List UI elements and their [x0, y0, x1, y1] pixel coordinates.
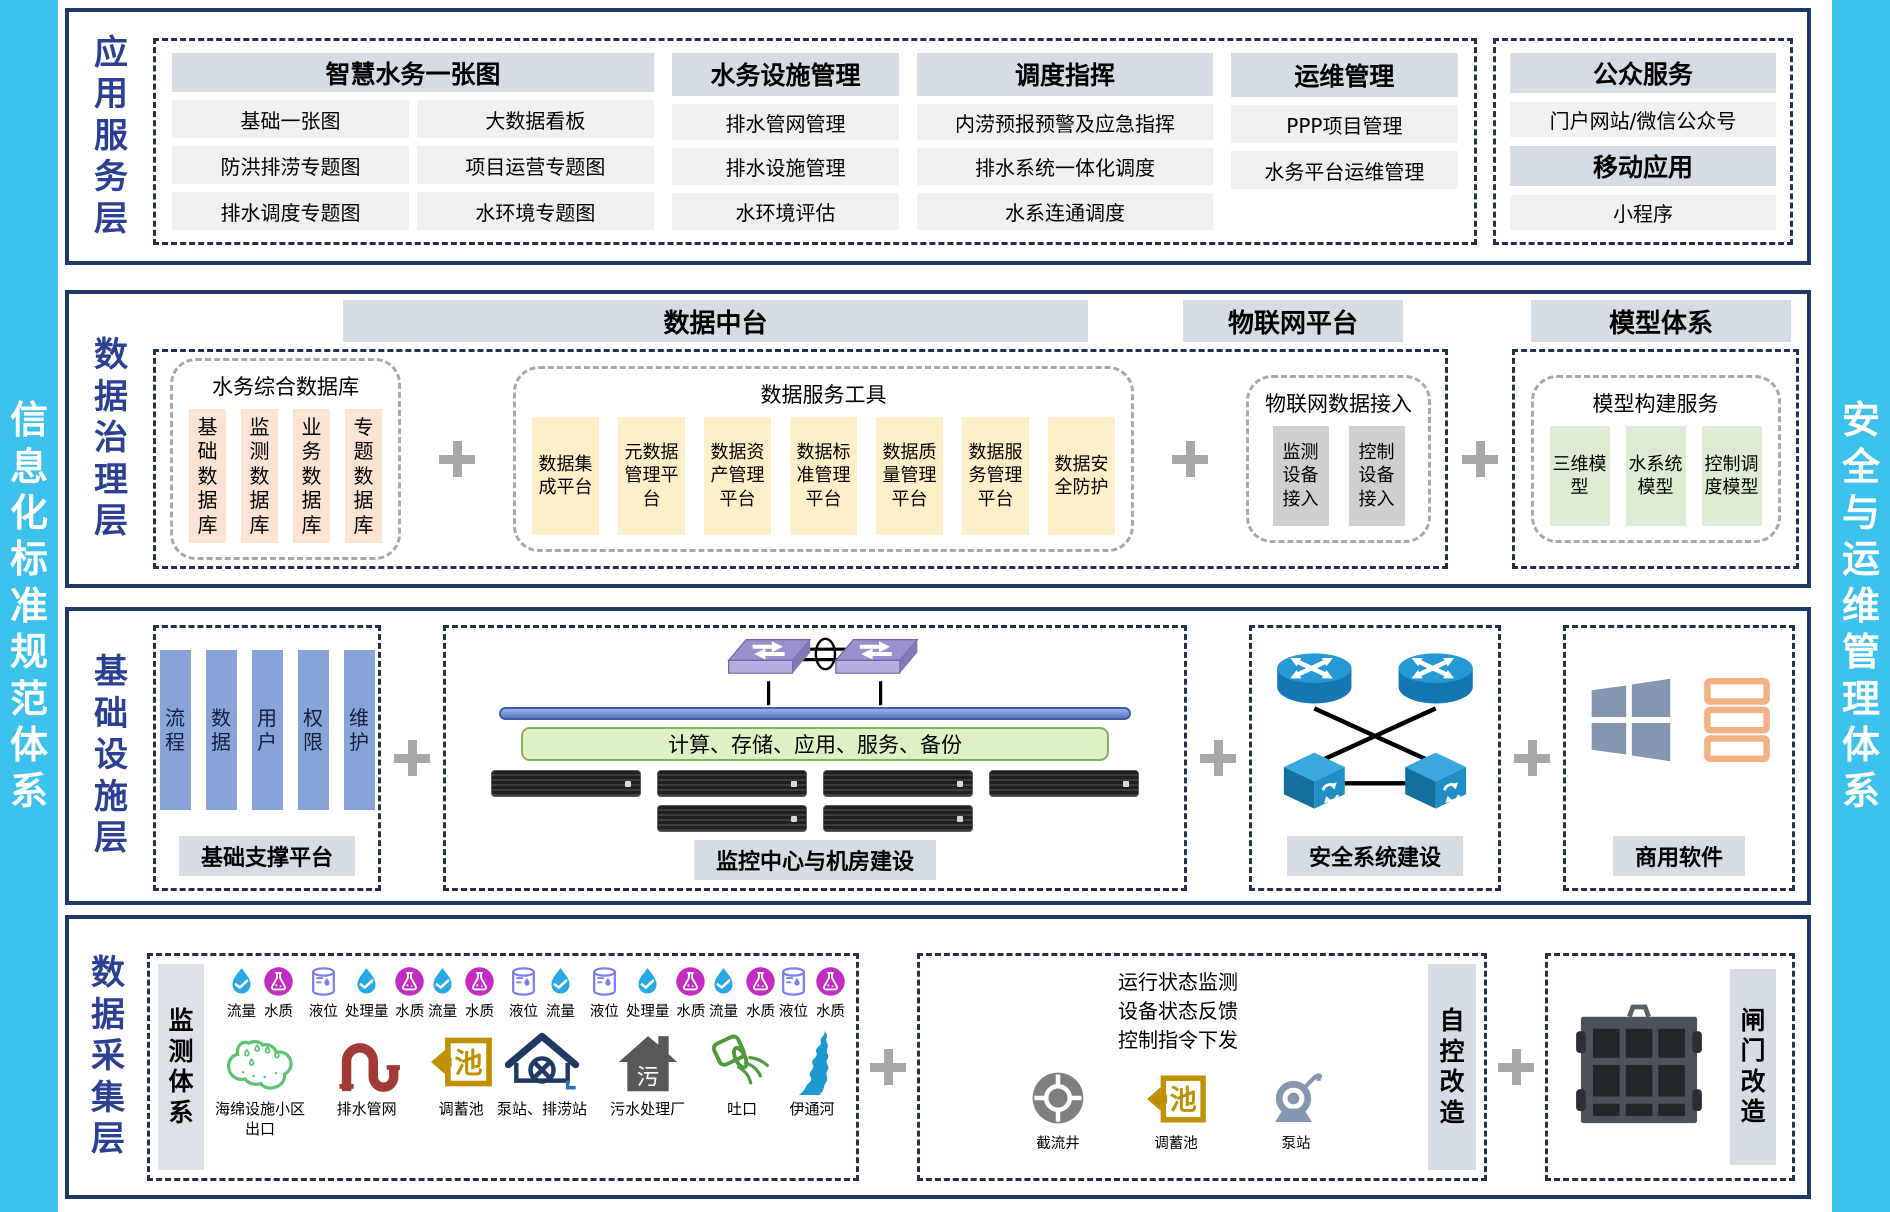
column-facility-management: 水务设施管理 排水管网管理 排水设施管理 水环境评估 — [672, 53, 899, 230]
model-cell: 控制调度模型 — [1702, 426, 1762, 526]
pump-icon — [1265, 1070, 1327, 1127]
group-title: 水务综合数据库 — [189, 371, 382, 401]
governance-body: 数据中台 物联网平台 模型体系 水务综合数据库 基础数据库 监测数据库 业务数据… — [153, 294, 1807, 584]
module-item: 排水调度专题图 — [172, 192, 409, 230]
flow-icon — [545, 966, 576, 997]
column-header: 调度指挥 — [917, 53, 1213, 96]
security-system-caption: 安全系统建设 — [1287, 836, 1463, 876]
gate-retrofit-box: 闸门改造 — [1545, 953, 1795, 1181]
model-system-header: 模型体系 — [1531, 300, 1791, 342]
column-smart-water-map: 智慧水务一张图 基础一张图 大数据看板 防洪排涝专题图 项目运营专题图 排水调度… — [172, 53, 654, 230]
storage-tank-icon — [429, 1033, 493, 1091]
module-item: 防洪排涝专题图 — [172, 146, 409, 184]
facility-label: 调蓄池 — [439, 1100, 484, 1120]
infrastructure-body: 流程 数据 用户 权限 维护 基础支撑平台 计算、存储、应用、服务、备份 — [153, 611, 1807, 901]
datacenter-caption: 监控中心与机房建设 — [694, 840, 936, 880]
module-item: 门户网站/微信公众号 — [1510, 102, 1776, 137]
auto-control-description: 运行状态监测 设备状态反馈 控制指令下发 — [1118, 968, 1238, 1055]
sponge-facility-icon — [221, 1032, 299, 1092]
group-storage-tank: 流量 水质 调蓄池 — [427, 966, 495, 1170]
module-item: 排水系统一体化调度 — [917, 148, 1213, 185]
security-system-box: 安全系统建设 — [1249, 625, 1501, 891]
column-header: 智慧水务一张图 — [172, 53, 654, 92]
module-item: PPP项目管理 — [1231, 105, 1458, 143]
water-quality-icon — [464, 966, 495, 997]
server-rack-grid — [456, 770, 1174, 832]
server-icon — [989, 770, 1139, 797]
monitoring-system-title: 监测体系 — [158, 964, 204, 1170]
database-cell: 基础数据库 — [189, 409, 226, 543]
column-header: 运维管理 — [1231, 53, 1458, 97]
flow-icon — [351, 966, 382, 997]
water-database-group: 水务综合数据库 基础数据库 监测数据库 业务数据库 专题数据库 — [170, 358, 401, 560]
plus-icon — [1200, 740, 1236, 776]
module-item: 水环境专题图 — [417, 192, 654, 230]
level-icon — [589, 966, 620, 997]
pump-station-icon — [504, 1031, 580, 1093]
standards-system-rail: 信息化标准规范体系 — [0, 0, 58, 1212]
layer-label-collection: 数据采集层 — [69, 919, 147, 1195]
plus-icon — [1498, 1049, 1534, 1085]
server-icon — [491, 770, 641, 797]
data-governance-layer-panel: 数据治理层 数据中台 物联网平台 模型体系 水务综合数据库 基础数据库 监测数据… — [65, 290, 1811, 588]
level-icon — [508, 966, 539, 997]
collection-body: 监测体系 流量 水质 海绵设施小区出口 液位 — [147, 919, 1807, 1195]
layer-label-infrastructure: 基础设施层 — [69, 611, 153, 901]
group-title: 模型构建服务 — [1550, 388, 1762, 418]
module-item: 基础一张图 — [172, 100, 409, 138]
flow-icon — [708, 966, 739, 997]
module-item: 排水管网管理 — [672, 104, 899, 141]
support-platform-caption: 基础支撑平台 — [179, 836, 355, 876]
model-build-group: 模型构建服务 三维模型 水系统模型 控制调度模型 — [1531, 375, 1781, 543]
mobile-app-header: 移动应用 — [1510, 146, 1776, 186]
monitoring-system-box: 监测体系 流量 水质 海绵设施小区出口 液位 — [147, 953, 859, 1181]
tool-cell: 数据质量管理平台 — [876, 417, 943, 535]
column-dispatch-command: 调度指挥 内涝预报预警及应急指挥 排水系统一体化调度 水系连通调度 — [917, 53, 1213, 230]
database-cell: 监测数据库 — [241, 409, 278, 543]
support-bar: 权限 — [298, 650, 329, 810]
water-quality-icon — [394, 966, 425, 997]
group-pipe-network: 液位 处理量 水质 排水管网 — [308, 966, 426, 1170]
iot-cell: 监测设备接入 — [1273, 426, 1329, 526]
datacenter-box: 计算、存储、应用、服务、备份 监控中心与机房建设 — [443, 625, 1187, 891]
facility-label: 泵站、排涝站 — [497, 1100, 587, 1120]
outlet-icon — [710, 1034, 774, 1090]
commercial-software-box: 商用软件 — [1563, 625, 1795, 891]
plus-icon — [1462, 441, 1498, 477]
model-cell: 三维模型 — [1550, 426, 1610, 526]
facility-label: 伊通河 — [789, 1100, 834, 1120]
flow-icon — [427, 966, 458, 997]
standards-system-label: 信息化标准规范体系 — [8, 397, 49, 814]
database-row: 基础数据库 监测数据库 业务数据库 专题数据库 — [189, 409, 382, 543]
water-quality-icon — [675, 966, 706, 997]
facility-label: 吐口 — [727, 1100, 757, 1120]
river-icon — [789, 1029, 835, 1095]
tool-cell: 数据标准管理平台 — [790, 417, 857, 535]
water-quality-icon — [263, 966, 294, 997]
group-sewage-plant: 液位 处理量 水质 污水处理厂 — [589, 966, 707, 1170]
server-icon — [657, 805, 807, 832]
server-icon — [823, 805, 973, 832]
tools-row: 数据集成平台 元数据管理平台 数据资产管理平台 数据标准管理平台 数据质量管理平… — [532, 417, 1115, 535]
governance-headers: 数据中台 物联网平台 模型体系 — [153, 300, 1807, 342]
facility-label: 排水管网 — [337, 1100, 397, 1120]
group-river: 液位 水质 伊通河 — [778, 966, 846, 1170]
commercial-software-caption: 商用软件 — [1613, 836, 1745, 876]
server-icon — [657, 770, 807, 797]
compute-storage-bar: 计算、存储、应用、服务、备份 — [521, 727, 1110, 761]
tool-cell: 数据集成平台 — [532, 417, 599, 535]
sewage-plant-icon — [615, 1031, 681, 1093]
support-bar: 数据 — [206, 650, 237, 810]
tool-cell: 数据安全防护 — [1048, 417, 1115, 535]
public-service-header: 公众服务 — [1510, 53, 1776, 93]
plus-icon — [1172, 441, 1208, 477]
module-item: 水务平台运维管理 — [1231, 151, 1458, 189]
core-switch-pair-icon — [590, 630, 1040, 707]
module-item: 项目运营专题图 — [417, 146, 654, 184]
application-body: 智慧水务一张图 基础一张图 大数据看板 防洪排涝专题图 项目运营专题图 排水调度… — [153, 12, 1807, 261]
model-box: 模型构建服务 三维模型 水系统模型 控制调度模型 — [1512, 349, 1799, 569]
plus-icon — [394, 740, 430, 776]
iot-row: 监测设备接入 控制设备接入 — [1265, 426, 1412, 526]
auto-control-main: 运行状态监测 设备状态反馈 控制指令下发 截流井 调蓄池 泵站 — [928, 964, 1428, 1170]
monitoring-groups: 流量 水质 海绵设施小区出口 液位 处理量 水质 — [214, 964, 848, 1170]
iot-access-group: 物联网数据接入 监测设备接入 控制设备接入 — [1246, 375, 1431, 543]
database-cell: 业务数据库 — [293, 409, 330, 543]
layer-label-application: 应用服务层 — [69, 12, 153, 261]
iot-platform-header: 物联网平台 — [1183, 300, 1403, 342]
application-service-layer-panel: 应用服务层 智慧水务一张图 基础一张图 大数据看板 防洪排涝专题图 项目运营专题… — [65, 8, 1811, 265]
data-service-tools-group: 数据服务工具 数据集成平台 元数据管理平台 数据资产管理平台 数据标准管理平台 … — [513, 366, 1134, 552]
auto-item-pump: 泵站 — [1265, 1070, 1327, 1153]
model-row: 三维模型 水系统模型 控制调度模型 — [1550, 426, 1762, 526]
public-service-box: 公众服务 门户网站/微信公众号 移动应用 小程序 — [1493, 38, 1793, 245]
column-header: 水务设施管理 — [672, 53, 899, 96]
group-title: 物联网数据接入 — [1265, 388, 1412, 418]
support-bar: 流程 — [160, 650, 191, 810]
tool-cell: 数据资产管理平台 — [704, 417, 771, 535]
group-title: 数据服务工具 — [532, 379, 1115, 409]
software-icons — [1584, 674, 1774, 766]
support-bar: 维护 — [344, 650, 375, 810]
support-platform-box: 流程 数据 用户 权限 维护 基础支撑平台 — [153, 625, 381, 891]
facility-label: 污水处理厂 — [610, 1100, 685, 1120]
database-cell: 专题数据库 — [345, 409, 382, 543]
software-stack-icon — [1700, 675, 1774, 765]
module-item: 内涝预报预警及应急指挥 — [917, 104, 1213, 141]
model-cell: 水系统模型 — [1626, 426, 1686, 526]
plus-icon — [1514, 740, 1550, 776]
level-icon — [308, 966, 339, 997]
support-bars: 流程 数据 用户 权限 维护 — [160, 650, 375, 810]
group-pump-station: 液位 流量 泵站、排涝站 — [497, 966, 587, 1170]
water-quality-icon — [745, 966, 776, 997]
water-quality-icon — [815, 966, 846, 997]
group-outlet: 流量 水质 吐口 — [708, 966, 776, 1170]
data-middle-platform-header: 数据中台 — [343, 300, 1088, 342]
storage-tank-icon — [1145, 1071, 1207, 1127]
server-icon — [823, 770, 973, 797]
group-sponge-facility: 流量 水质 海绵设施小区出口 — [214, 966, 306, 1170]
flow-icon — [226, 966, 257, 997]
module-item: 小程序 — [1510, 195, 1776, 230]
column-ops-management: 运维管理 PPP项目管理 水务平台运维管理 — [1231, 53, 1458, 230]
level-icon — [778, 966, 809, 997]
application-modules-box: 智慧水务一张图 基础一张图 大数据看板 防洪排涝专题图 项目运营专题图 排水调度… — [153, 38, 1477, 245]
module-item: 水系连通调度 — [917, 193, 1213, 230]
gate-icon — [1564, 1002, 1714, 1133]
security-ops-label: 安全与运维管理体系 — [1840, 397, 1881, 814]
auto-control-box: 运行状态监测 设备状态反馈 控制指令下发 截流井 调蓄池 泵站 — [917, 953, 1487, 1181]
support-bar: 用户 — [252, 650, 283, 810]
data-platform-box: 水务综合数据库 基础数据库 监测数据库 业务数据库 专题数据库 数据服务工具 数… — [153, 349, 1448, 569]
layer-label-governance: 数据治理层 — [69, 294, 153, 584]
flow-icon — [632, 966, 663, 997]
auto-item-intercept-well: 截流井 — [1029, 1069, 1087, 1153]
infrastructure-layer-panel: 基础设施层 流程 数据 用户 权限 维护 基础支撑平台 计算、存储、应用、服务、… — [65, 607, 1811, 905]
auto-control-items: 截流井 调蓄池 泵站 — [1029, 1069, 1327, 1153]
tool-cell: 数据服务管理平台 — [962, 417, 1029, 535]
plus-icon — [439, 441, 475, 477]
data-collection-layer-panel: 数据采集层 监测体系 流量 水质 海绵设施小区出口 — [65, 915, 1811, 1199]
module-grid: 基础一张图 大数据看板 防洪排涝专题图 项目运营专题图 排水调度专题图 水环境专… — [172, 100, 654, 230]
router-switch-cluster-icon — [1259, 640, 1491, 816]
governance-content-row: 水务综合数据库 基础数据库 监测数据库 业务数据库 专题数据库 数据服务工具 数… — [153, 349, 1807, 569]
auto-item-storage-tank: 调蓄池 — [1145, 1071, 1207, 1153]
plus-icon — [870, 1049, 906, 1085]
iot-cell: 控制设备接入 — [1349, 426, 1405, 526]
module-item: 大数据看板 — [417, 100, 654, 138]
tool-cell: 元数据管理平台 — [618, 417, 685, 535]
pipe-network-icon — [334, 1031, 400, 1093]
module-item: 排水设施管理 — [672, 148, 899, 185]
module-item: 水环境评估 — [672, 193, 899, 230]
security-ops-rail: 安全与运维管理体系 — [1832, 0, 1890, 1212]
gate-retrofit-title: 闸门改造 — [1730, 969, 1776, 1164]
network-backbone-bar — [499, 707, 1131, 720]
facility-label: 海绵设施小区出口 — [214, 1100, 306, 1139]
intercept-well-icon — [1029, 1069, 1087, 1127]
auto-control-title: 自控改造 — [1428, 964, 1476, 1170]
windows-logo-icon — [1584, 674, 1676, 766]
